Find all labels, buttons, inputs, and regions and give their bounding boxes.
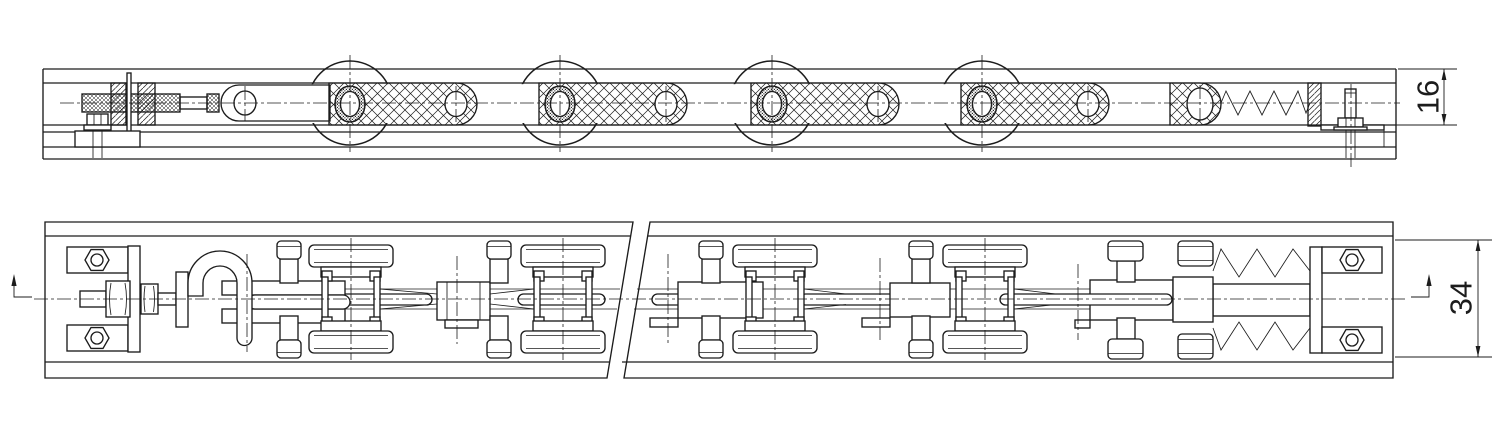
- hex-nut-icon: [1340, 250, 1364, 271]
- joint-block: [437, 282, 490, 320]
- hex-nut-icon: [85, 328, 109, 349]
- chain-tensioner-assembly-drawing: 16: [0, 0, 1503, 439]
- chain-link: [961, 83, 1109, 125]
- joint-block: [890, 283, 950, 317]
- lock-nut: [111, 83, 126, 125]
- plan-right-section: [622, 222, 1393, 378]
- technical-drawing-page: 16: [0, 0, 1503, 439]
- slider-tongue: [1213, 284, 1310, 316]
- chain-link: [539, 83, 687, 125]
- hex-nut-icon: [1340, 330, 1364, 351]
- plan-view: [34, 222, 1407, 378]
- slider-block: [1173, 277, 1213, 322]
- chain-link: [751, 83, 899, 125]
- chain-link: [329, 83, 477, 125]
- anchor-foot: [75, 131, 140, 147]
- link-slot: [1000, 294, 1172, 305]
- dimension-label-34: 34: [1444, 281, 1479, 315]
- plan-left-section: [45, 222, 633, 378]
- dimension-label-16: 16: [1411, 80, 1446, 114]
- hex-nut-icon: [85, 250, 109, 271]
- lock-nut: [138, 83, 155, 125]
- chain-links-side: [329, 83, 1221, 125]
